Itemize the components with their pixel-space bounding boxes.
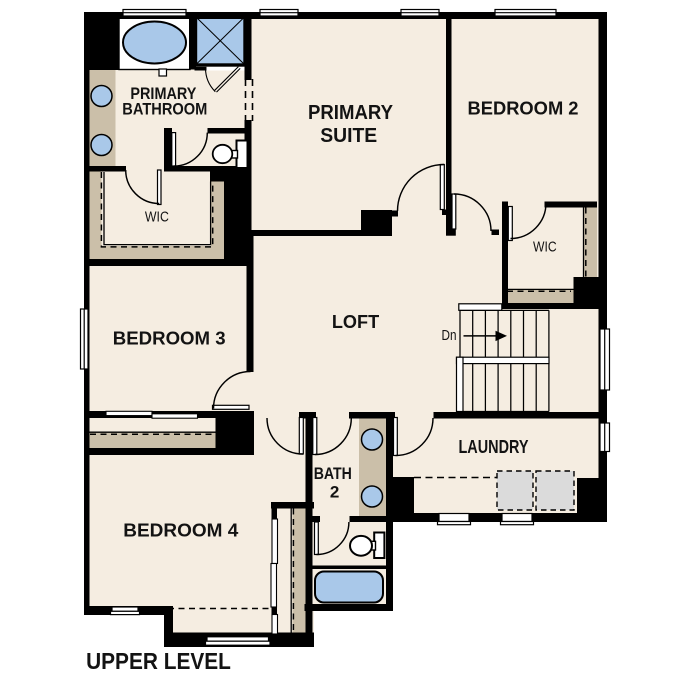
svg-text:Dn: Dn <box>442 328 457 344</box>
svg-text:BEDROOM 3: BEDROOM 3 <box>113 328 226 349</box>
svg-text:2: 2 <box>330 482 339 501</box>
svg-text:BEDROOM 2: BEDROOM 2 <box>468 98 579 119</box>
svg-text:SUITE: SUITE <box>320 124 377 147</box>
svg-text:BATHROOM: BATHROOM <box>122 99 207 118</box>
svg-text:LOFT: LOFT <box>332 311 380 332</box>
svg-text:WIC: WIC <box>533 240 557 256</box>
svg-text:WIC: WIC <box>145 209 169 226</box>
svg-text:BEDROOM 4: BEDROOM 4 <box>123 520 239 541</box>
svg-text:PRIMARY: PRIMARY <box>308 101 393 124</box>
svg-text:UPPER LEVEL: UPPER LEVEL <box>86 648 231 674</box>
svg-text:BATH: BATH <box>314 464 352 483</box>
svg-text:LAUNDRY: LAUNDRY <box>459 436 530 457</box>
